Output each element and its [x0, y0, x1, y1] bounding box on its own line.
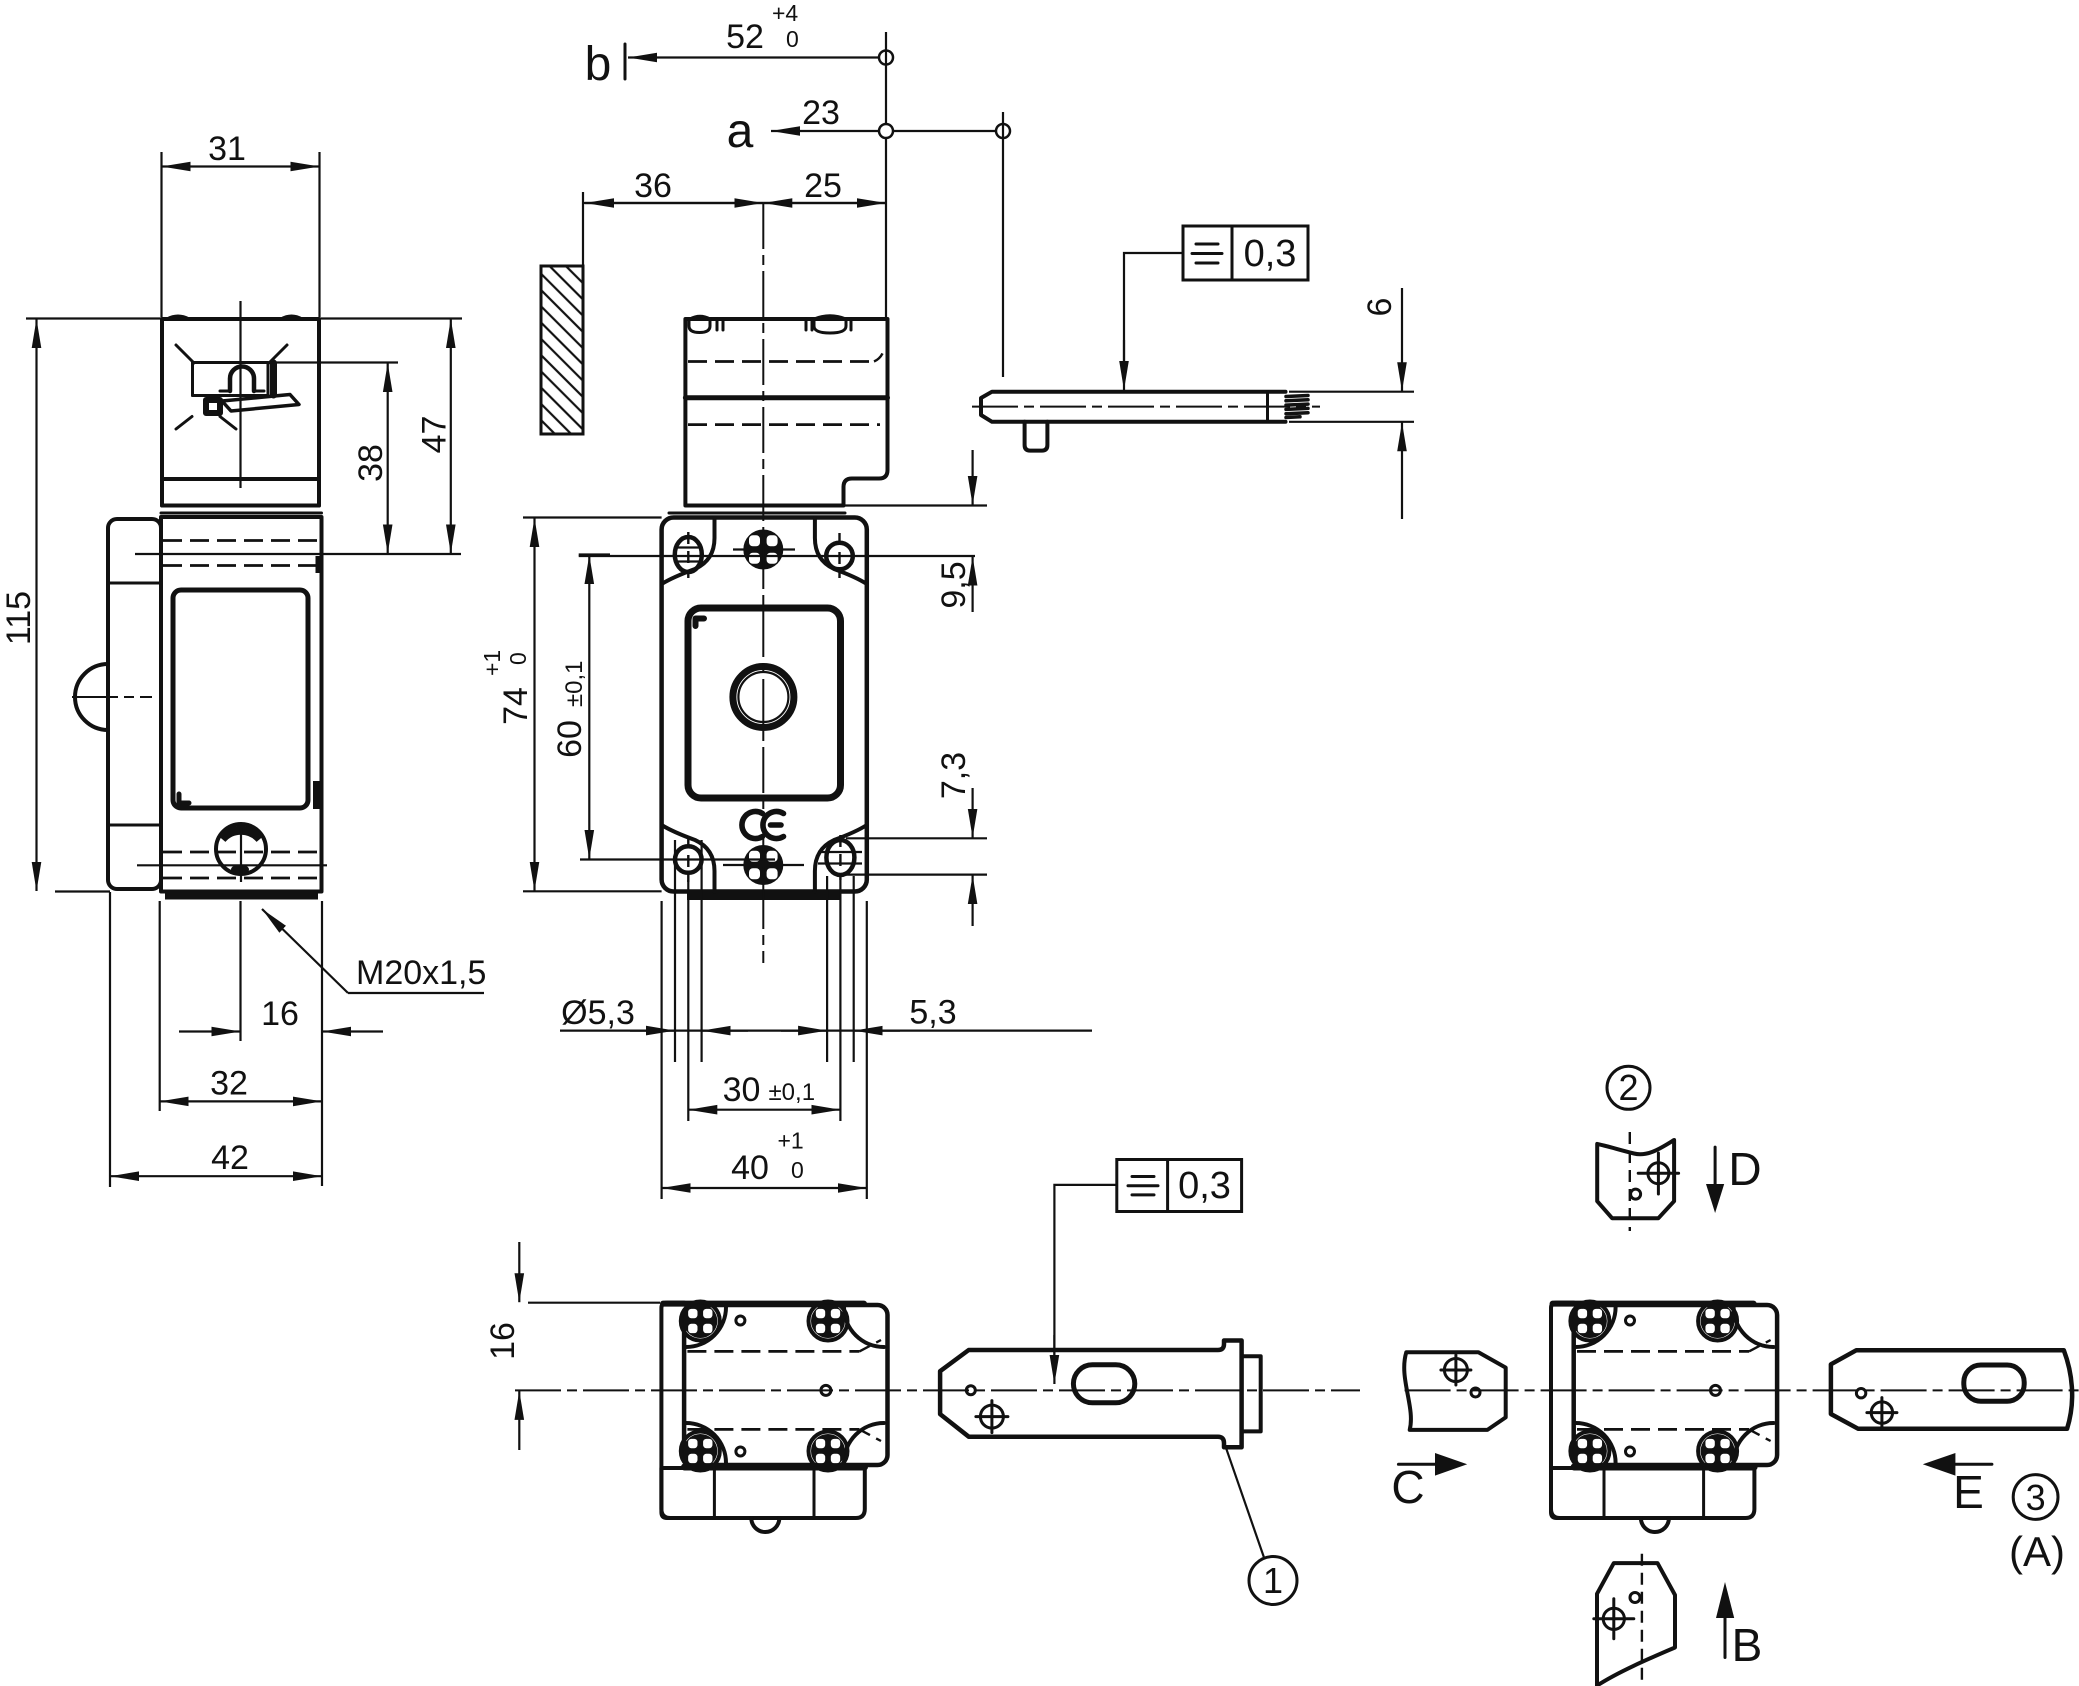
svg-text:40: 40 [731, 1149, 769, 1187]
svg-text:47: 47 [416, 416, 454, 454]
svg-text:Ø5,3: Ø5,3 [561, 994, 635, 1032]
svg-text:(A): (A) [2009, 1528, 2065, 1575]
svg-text:25: 25 [804, 167, 842, 205]
svg-text:6: 6 [1361, 298, 1399, 317]
svg-text:36: 36 [634, 167, 672, 205]
svg-text:+4: +4 [772, 0, 798, 26]
svg-text:60: 60 [551, 720, 589, 758]
svg-text:23: 23 [802, 94, 840, 132]
svg-text:16: 16 [484, 1322, 522, 1360]
svg-text:b: b [585, 38, 612, 91]
svg-text:5,3: 5,3 [909, 994, 956, 1032]
svg-text:74: 74 [497, 687, 535, 725]
svg-text:+1: +1 [479, 650, 505, 676]
svg-text:38: 38 [352, 444, 390, 482]
svg-text:30: 30 [723, 1071, 761, 1109]
svg-text:0,3: 0,3 [1178, 1165, 1231, 1207]
svg-text:32: 32 [210, 1065, 248, 1103]
svg-text:3: 3 [2026, 1477, 2046, 1518]
svg-text:D: D [1728, 1143, 1761, 1195]
svg-text:0,3: 0,3 [1244, 233, 1297, 275]
svg-text:0: 0 [791, 1157, 804, 1183]
svg-text:±0,1: ±0,1 [561, 660, 588, 707]
svg-text:31: 31 [208, 130, 246, 168]
svg-text:B: B [1732, 1619, 1763, 1671]
svg-text:+1: +1 [778, 1128, 804, 1154]
svg-text:a: a [727, 105, 754, 158]
svg-text:7,3: 7,3 [935, 752, 973, 799]
svg-text:52: 52 [726, 18, 764, 56]
svg-text:±0,1: ±0,1 [769, 1079, 816, 1106]
svg-text:115: 115 [0, 591, 38, 645]
svg-text:1: 1 [1263, 1560, 1283, 1601]
svg-text:2: 2 [1618, 1067, 1638, 1108]
svg-text:9,5: 9,5 [935, 561, 973, 608]
svg-text:M20x1,5: M20x1,5 [356, 954, 486, 992]
svg-text:0: 0 [505, 652, 531, 665]
svg-text:16: 16 [261, 995, 299, 1033]
svg-text:0: 0 [786, 26, 799, 52]
svg-text:E: E [1953, 1466, 1984, 1518]
svg-text:42: 42 [211, 1139, 249, 1177]
svg-text:C: C [1391, 1461, 1424, 1513]
